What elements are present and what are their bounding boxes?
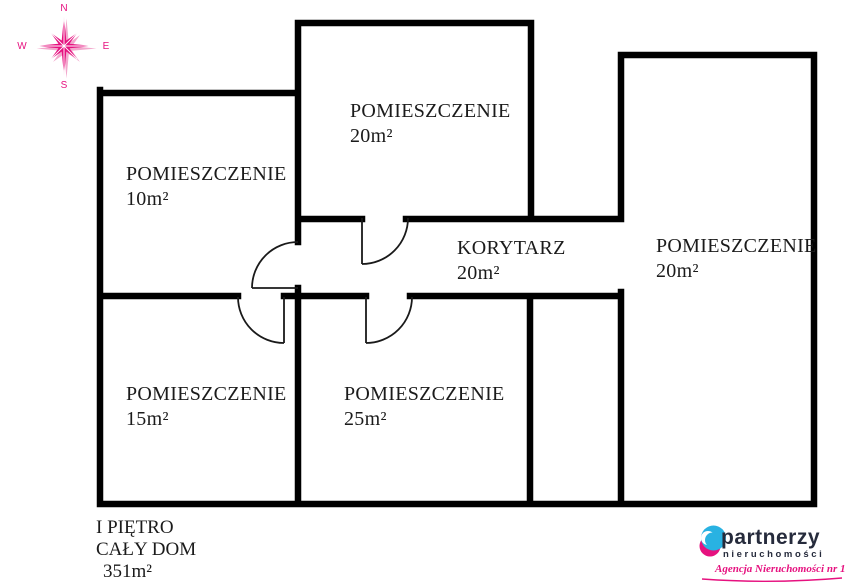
room-label-left: POMIESZCZENIE 10m²	[126, 162, 287, 212]
room-label-corridor: KORYTARZ 20m²	[457, 236, 566, 286]
plan-caption: I PIĘTRO CAŁY DOM 351m²	[96, 517, 196, 583]
compass-rose-icon: N E S W	[17, 3, 109, 91]
room-area: 20m²	[656, 259, 817, 284]
room-label-bottom-middle: POMIESZCZENIE 25m²	[344, 382, 505, 432]
door-bottom-middle-room	[366, 297, 412, 343]
room-label-right: POMIESZCZENIE 20m²	[656, 234, 817, 284]
room-area: 10m²	[126, 187, 287, 212]
logo-brand-subtext: nieruchomości	[723, 549, 824, 560]
door-top-room	[362, 218, 408, 264]
floor-name: I PIĘTRO	[96, 517, 196, 539]
room-area: 15m²	[126, 407, 287, 432]
logo-underline	[702, 578, 842, 581]
room-name: POMIESZCZENIE	[656, 234, 817, 259]
door-left-room	[252, 242, 298, 288]
scope-name: CAŁY DOM	[96, 539, 196, 561]
floor-plan-drawing: N E S W	[0, 0, 845, 585]
room-name: POMIESZCZENIE	[344, 382, 505, 407]
floor-plan-page: N E S W POMIESZCZENIE 20m² POMIESZCZENIE…	[0, 0, 845, 585]
door-bottom-left-room	[238, 297, 284, 343]
room-name: KORYTARZ	[457, 236, 566, 261]
compass-south-label: S	[61, 80, 68, 91]
room-name: POMIESZCZENIE	[350, 99, 511, 124]
room-area: 20m²	[457, 261, 566, 286]
room-name: POMIESZCZENIE	[126, 162, 287, 187]
room-label-bottom-left: POMIESZCZENIE 15m²	[126, 382, 287, 432]
compass-north-label: N	[60, 3, 67, 14]
room-area: 20m²	[350, 124, 511, 149]
logo-brand-text: partnerzy	[721, 526, 820, 550]
logo-tagline-text: Agencja Nieruchomości nr 1	[715, 563, 845, 575]
room-area: 25m²	[344, 407, 505, 432]
agency-logo: partnerzy nieruchomości Agencja Nierucho…	[694, 524, 844, 582]
total-area: 351m²	[96, 561, 196, 583]
compass-east-label: E	[103, 41, 110, 52]
room-label-top: POMIESZCZENIE 20m²	[350, 99, 511, 149]
room-name: POMIESZCZENIE	[126, 382, 287, 407]
compass-west-label: W	[17, 41, 27, 52]
